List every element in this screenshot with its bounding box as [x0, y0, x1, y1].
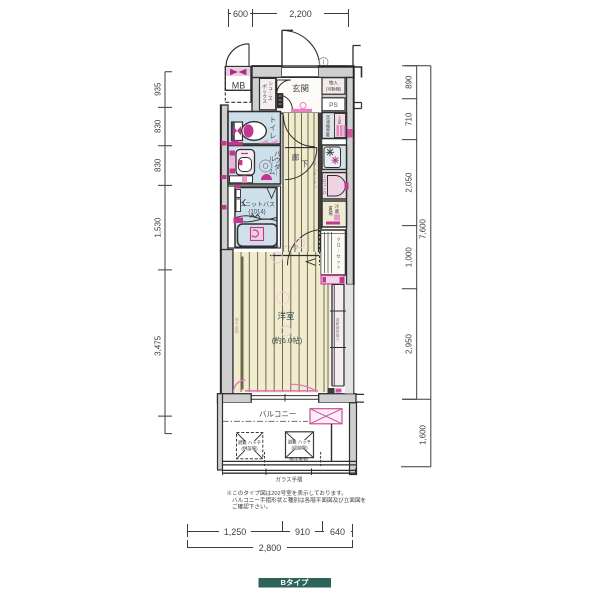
svg-text:640: 640 [330, 527, 345, 537]
svg-text:洋室: 洋室 [277, 311, 295, 321]
svg-text:830: 830 [154, 158, 163, 172]
svg-text:(併設場): (併設場) [241, 445, 258, 452]
svg-text:710: 710 [405, 112, 414, 126]
svg-text:(収納場): (収納場) [291, 445, 308, 452]
svg-text:トイレ: トイレ [269, 117, 276, 140]
svg-text:600: 600 [233, 9, 248, 19]
svg-text:830: 830 [154, 119, 163, 133]
svg-text:避難器具降下: 避難器具降下 [336, 317, 340, 342]
svg-text:Bタイプ: Bタイプ [281, 577, 309, 587]
svg-text:※このタイプ図は202号室を表示しております。: ※このタイプ図は202号室を表示しております。 [227, 489, 347, 497]
svg-text:890: 890 [405, 75, 414, 89]
svg-text:避難 ハッチ: 避難 ハッチ [238, 439, 261, 446]
svg-text:物干金物: 物干金物 [235, 317, 239, 334]
svg-text:シュ｜ズ ボックス: シュ｜ズ ボックス [262, 82, 274, 105]
svg-text:1,250: 1,250 [224, 527, 247, 537]
svg-text:システムキッチン: システムキッチン [313, 154, 317, 189]
svg-text:3,475: 3,475 [154, 335, 163, 356]
svg-text:ご確認下さい。: ご確認下さい。 [232, 503, 271, 511]
svg-text:玄関: 玄関 [292, 84, 309, 94]
svg-text:2,800: 2,800 [259, 543, 282, 553]
svg-text:1,530: 1,530 [154, 217, 163, 238]
svg-text:2,950: 2,950 [405, 333, 414, 354]
svg-text:7,600: 7,600 [419, 218, 428, 239]
svg-text:物入: 物入 [329, 80, 339, 87]
svg-text:1,600: 1,600 [419, 424, 428, 445]
svg-text:ガラス手摺: ガラス手摺 [276, 476, 303, 484]
svg-text:フローリング: フローリング [276, 245, 299, 250]
svg-text:クロ｜ゼット: クロ｜ゼット [336, 236, 340, 270]
svg-text:PS: PS [329, 102, 338, 109]
svg-text:バルコニー手摺形状と種別は各階平面図及び立面図を: バルコニー手摺形状と種別は各階平面図及び立面図を [232, 496, 366, 504]
svg-text:(約6.0帖): (約6.0帖) [272, 335, 303, 345]
svg-text:物干金物: 物干金物 [289, 456, 308, 463]
svg-text:(可動棚): (可動棚) [326, 86, 342, 93]
svg-text:2,050: 2,050 [405, 172, 414, 193]
svg-text:935: 935 [154, 82, 163, 96]
svg-text:1,000: 1,000 [405, 247, 414, 268]
svg-text:避難 ハッチ: 避難 ハッチ [288, 439, 311, 446]
svg-text:2,200: 2,200 [289, 9, 312, 19]
svg-text:910: 910 [295, 527, 310, 537]
svg-text:バルコニー: バルコニー [259, 410, 296, 419]
svg-text:MB: MB [232, 81, 246, 91]
